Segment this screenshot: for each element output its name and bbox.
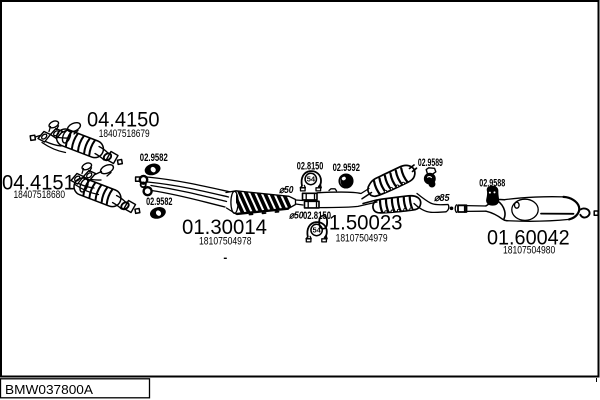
svg-text:BMW037800A: BMW037800A bbox=[5, 382, 93, 397]
svg-text:02.9589: 02.9589 bbox=[418, 157, 443, 169]
svg-text:18107504978: 18107504978 bbox=[199, 235, 252, 247]
svg-text:02.9582: 02.9582 bbox=[140, 152, 168, 164]
svg-text:⌀50: ⌀50 bbox=[289, 211, 304, 222]
svg-text:02.9592: 02.9592 bbox=[333, 162, 360, 174]
svg-text:54: 54 bbox=[313, 226, 322, 235]
svg-text:54: 54 bbox=[307, 175, 316, 184]
svg-text:18107504979: 18107504979 bbox=[336, 233, 388, 245]
svg-text:⌀50: ⌀50 bbox=[279, 185, 294, 196]
svg-text:18407518679: 18407518679 bbox=[99, 128, 150, 140]
svg-text:⌀85: ⌀85 bbox=[434, 193, 450, 204]
svg-text:02.8150: 02.8150 bbox=[303, 210, 331, 222]
svg-text:18107504980: 18107504980 bbox=[503, 244, 555, 256]
svg-text:02.9582: 02.9582 bbox=[146, 196, 172, 208]
svg-text:18407518680: 18407518680 bbox=[14, 189, 66, 201]
